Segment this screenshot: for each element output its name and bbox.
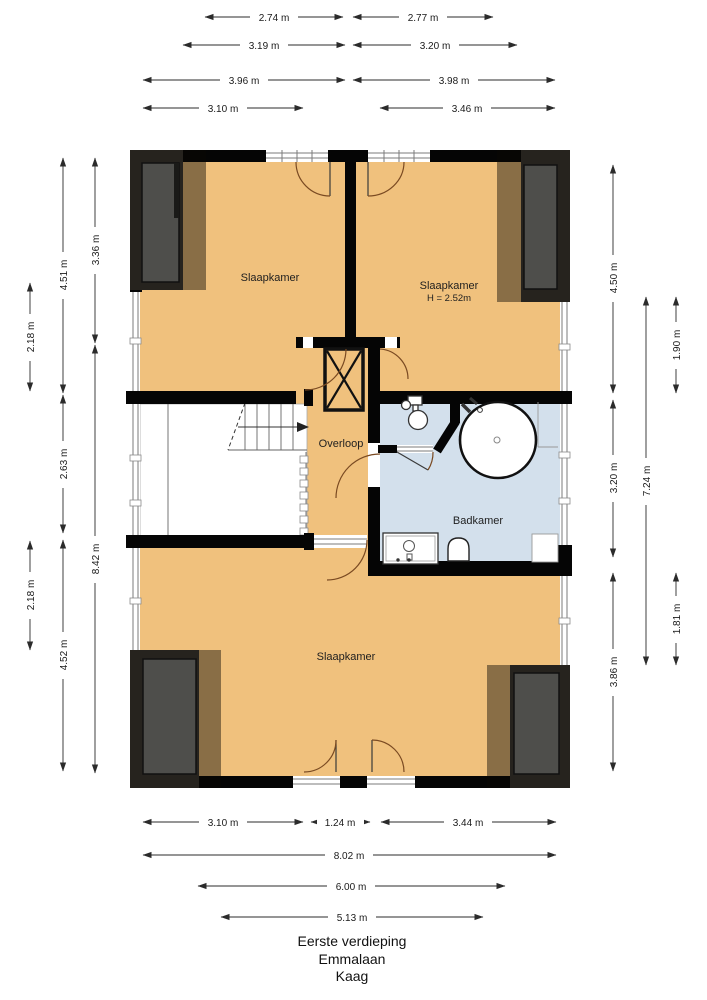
dimension-label: 3.98 m (439, 76, 470, 87)
room-label-bedroom-top-left: Slaapkamer (241, 272, 300, 284)
dimension-label: 3.96 m (229, 76, 260, 87)
dimension-label: 2.63 m (59, 449, 70, 480)
room-label-bathroom: Badkamer (453, 515, 503, 527)
dimension-label: 7.24 m (642, 466, 653, 497)
dimension-label: 2.18 m (26, 322, 37, 353)
floorplan-drawing: Slaapkamer Slaapkamer H = 2.52m Overloop… (0, 0, 707, 1000)
stairwell-void (140, 404, 307, 537)
dimension-label: 3.44 m (453, 818, 484, 829)
dimension-label: 3.46 m (452, 104, 483, 115)
dimension-label: 3.86 m (609, 657, 620, 688)
dimension-label: 3.36 m (91, 235, 102, 266)
dimension-label: 1.90 m (672, 330, 683, 361)
dimension-label: 3.10 m (208, 818, 239, 829)
room-label-bedroom-bottom: Slaapkamer (317, 651, 376, 663)
bedroom-divider-wall (345, 160, 356, 347)
dimension-label: 6.00 m (336, 882, 367, 893)
dimension-label: 4.52 m (59, 640, 70, 671)
title-floor: Eerste verdieping (298, 933, 407, 949)
dimensions-right: 4.50 m 3.20 m 3.86 m 7.24 m 1.90 m 1.81 … (606, 165, 683, 771)
dimension-label: 5.13 m (337, 913, 368, 924)
title-city: Kaag (336, 968, 369, 984)
title-street: Emmalaan (319, 951, 386, 967)
dimension-label: 3.10 m (208, 104, 239, 115)
bathroom-step (532, 534, 558, 562)
dimension-label: 4.50 m (609, 263, 620, 294)
dimension-label: 3.20 m (609, 463, 620, 494)
dimension-label: 3.19 m (249, 41, 280, 52)
dimension-label: 3.20 m (420, 41, 451, 52)
vanity-sink (383, 533, 438, 564)
room-height-note: H = 2.52m (427, 293, 471, 304)
dimension-label: 4.51 m (59, 260, 70, 291)
toilet (448, 538, 469, 561)
dimension-label: 2.18 m (26, 580, 37, 611)
dimension-label: 8.02 m (334, 851, 365, 862)
dimension-label: 2.74 m (259, 13, 290, 24)
dimension-label: 8.42 m (91, 544, 102, 575)
room-label-bedroom-top-right: Slaapkamer (420, 280, 479, 292)
dimension-label: 1.24 m (325, 818, 356, 829)
chimney-shaft (325, 349, 363, 410)
title-block: Eerste verdieping Emmalaan Kaag (298, 933, 407, 984)
bathroom-north-wall (368, 391, 572, 404)
dimensions-top: 2.74 m 2.77 m 3.19 m 3.20 m 3.96 m 3.98 … (143, 10, 555, 115)
dimension-label: 2.77 m (408, 13, 439, 24)
dimensions-bottom: 3.10 m 1.24 m 3.44 m 8.02 m 6.00 m 5.13 … (143, 815, 556, 924)
dimensions-left: 3.36 m 8.42 m 4.51 m 2.63 m 4.52 m 2.18 … (23, 158, 102, 773)
round-bathtub (460, 402, 536, 478)
room-label-landing: Overloop (319, 438, 364, 450)
dimension-label: 1.81 m (672, 604, 683, 635)
floorplan-page: Slaapkamer Slaapkamer H = 2.52m Overloop… (0, 0, 707, 1000)
